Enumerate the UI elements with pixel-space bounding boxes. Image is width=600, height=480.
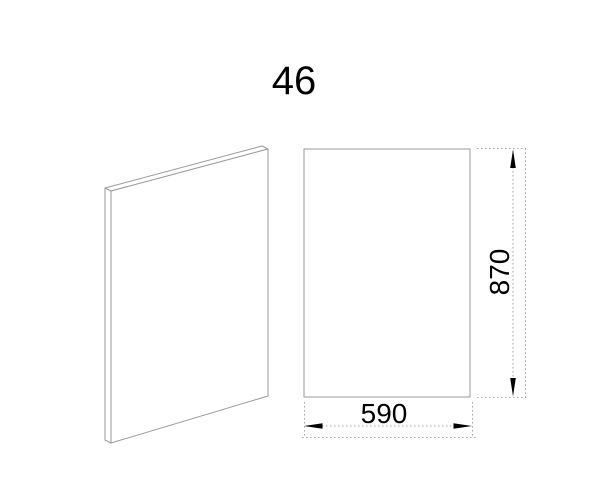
drawing-page: 46 870 590	[0, 0, 600, 480]
panel-left-edge-face	[105, 188, 111, 443]
panel-elevation-view	[304, 149, 470, 397]
technical-drawing: 46 870 590	[0, 0, 600, 480]
panel-isometric-view	[105, 146, 268, 443]
width-dimension-label: 590	[361, 398, 408, 429]
arrow-down-icon	[510, 378, 516, 397]
arrow-up-icon	[510, 150, 516, 169]
width-dimension: 590	[302, 398, 477, 438]
arrow-right-icon	[454, 423, 473, 429]
height-dimension: 870	[477, 149, 526, 398]
height-dimension-label: 870	[484, 249, 515, 296]
panel-front-face	[111, 149, 268, 443]
panel-outline	[304, 149, 470, 397]
drawing-number-label: 46	[272, 59, 317, 103]
arrow-left-icon	[304, 423, 323, 429]
